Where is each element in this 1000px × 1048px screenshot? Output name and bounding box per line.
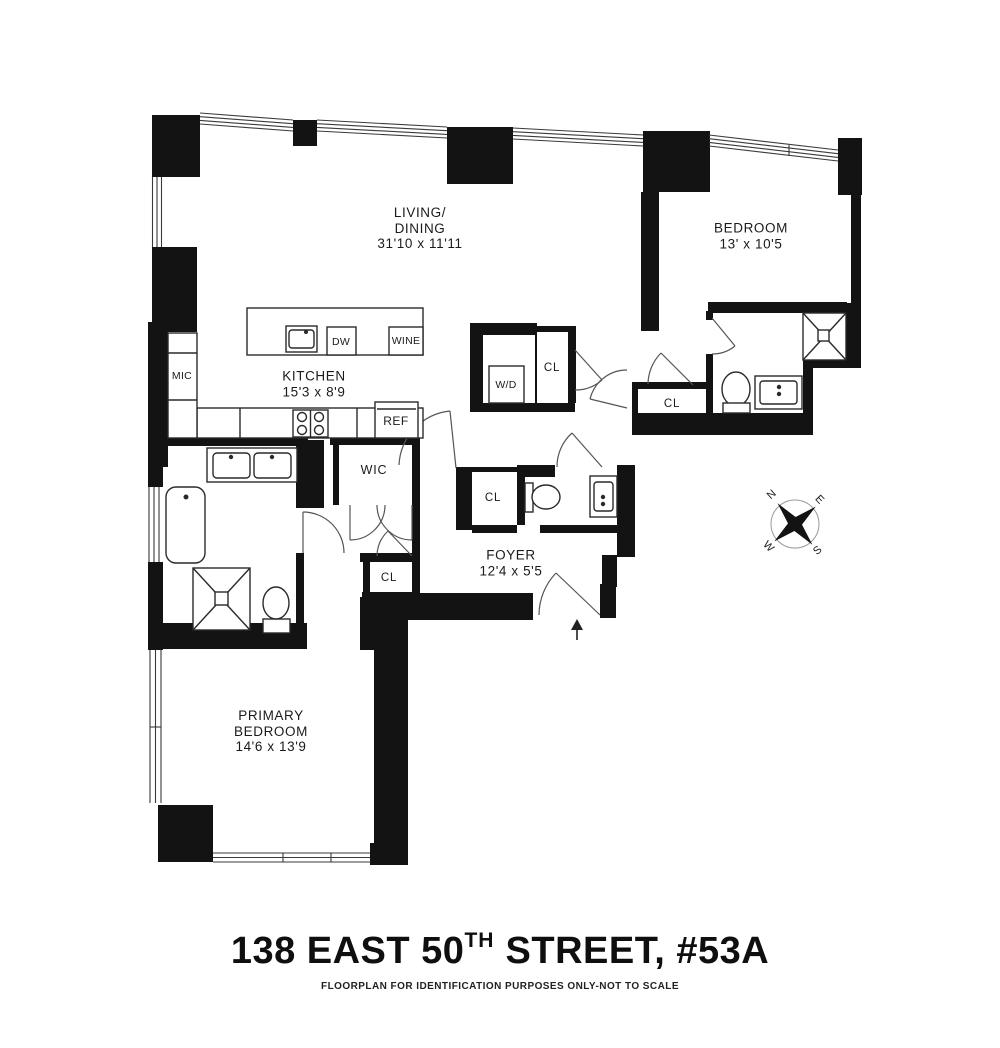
wall-entry-post xyxy=(600,584,616,618)
window-top-c xyxy=(513,128,643,146)
door-bedroom xyxy=(648,353,693,385)
hall-bath-sink xyxy=(590,476,617,517)
foyer-name: FOYER xyxy=(480,548,543,564)
wall-cl1-right xyxy=(568,326,576,403)
wall-wd-left xyxy=(470,323,483,412)
island-sink-basin xyxy=(289,330,314,348)
ref-label: REF xyxy=(383,414,409,428)
wall-top-left-corner xyxy=(152,115,200,177)
wall-bath2-bottom xyxy=(540,525,617,533)
window-left-upper xyxy=(153,177,162,247)
wall-cl3-left xyxy=(456,467,472,530)
wall-wd-top xyxy=(470,323,537,335)
wall-primary-right-bottom xyxy=(370,843,408,865)
shower-drain xyxy=(215,592,228,605)
hall-bath-toilet xyxy=(525,483,560,512)
wall-cl4-bottom xyxy=(362,592,418,600)
compass-s-label: S xyxy=(811,544,824,558)
living-dining-line2: DINING xyxy=(377,220,462,236)
wall-top-pier-2 xyxy=(447,127,513,184)
entry-arrow xyxy=(571,619,583,640)
wall-bath2-right xyxy=(617,465,635,557)
closet-primary-label: CL xyxy=(381,572,397,584)
wall-bottom-left-block xyxy=(158,805,213,862)
window-bottom-primary xyxy=(213,853,370,862)
wic-label: WIC xyxy=(361,463,388,477)
dw-label: DW xyxy=(332,336,350,348)
bedroom-toilet xyxy=(722,372,750,413)
wall-bath3-top xyxy=(708,302,847,313)
wall-left-block xyxy=(152,247,197,332)
wall-top-pier-1 xyxy=(293,120,317,146)
closet-foyer-label: CL xyxy=(485,492,501,504)
living-dining-dims: 31'10 x 11'11 xyxy=(377,236,462,252)
title-superscript: TH xyxy=(464,929,494,952)
wall-bath1-right-chunk xyxy=(296,440,324,508)
primary-bedroom-label: PRIMARY BEDROOM 14'6 x 13'9 xyxy=(234,708,308,755)
closet-hall-label: CL xyxy=(544,362,560,374)
wall-wic-left xyxy=(333,445,339,505)
living-dining-line1: LIVING/ xyxy=(377,205,462,221)
door-bedroom-bath xyxy=(712,318,735,354)
mic-label: MIC xyxy=(172,370,192,382)
burner xyxy=(315,426,324,435)
floorplan-svg: N E S W xyxy=(0,0,1000,1048)
wall-bath3-left-low xyxy=(706,354,713,415)
bedroom-dims: 13' x 10'5 xyxy=(714,236,788,252)
foyer-label: FOYER 12'4 x 5'5 xyxy=(480,548,543,579)
living-dining-label: LIVING/ DINING 31'10 x 11'11 xyxy=(377,205,462,252)
kitchen-name: KITCHEN xyxy=(282,369,345,385)
page-title: 138 EAST 50TH STREET, #53A xyxy=(0,930,1000,973)
wall-cl3-top xyxy=(472,467,517,472)
wall-bath3-right xyxy=(846,303,861,366)
window-left-primary xyxy=(150,650,161,803)
wall-cl2-left xyxy=(632,382,638,415)
wall-bath1-right-low xyxy=(296,553,304,625)
wall-wd-bottom xyxy=(470,403,575,412)
wall-cl2-top xyxy=(638,382,713,389)
wall-bath2-left xyxy=(517,477,525,525)
compass-rose: N E S W xyxy=(760,488,826,558)
door-hall-bath xyxy=(557,433,602,467)
window-left-bath xyxy=(149,487,159,562)
compass-w-label: W xyxy=(760,539,776,555)
wall-left-stub xyxy=(148,467,163,487)
wall-cl3-bottom xyxy=(472,525,517,533)
wall-foyer-bottom xyxy=(408,593,533,620)
closet-bedroom-label: CL xyxy=(664,398,680,410)
burner xyxy=(298,426,307,435)
wall-wic-right xyxy=(412,437,420,597)
wall-cl4-left xyxy=(363,562,370,597)
primary-line1: PRIMARY xyxy=(234,708,308,724)
door-hallway xyxy=(590,370,627,408)
microwave-cabinet xyxy=(168,333,197,438)
window-top-b xyxy=(317,120,447,138)
bedroom-name: BEDROOM xyxy=(714,221,788,237)
foyer-dims: 12'4 x 5'5 xyxy=(480,563,543,579)
wall-cl4-top xyxy=(360,553,418,562)
window-top-bedroom xyxy=(709,135,838,161)
faucet-dot xyxy=(230,456,233,459)
title-disclaimer: FLOORPLAN FOR IDENTIFICATION PURPOSES ON… xyxy=(0,981,1000,992)
wall-primary-right-top xyxy=(360,597,408,650)
floorplan-page: N E S W LIVING/ DINING 31'10 x 11'11 BED… xyxy=(0,0,1000,1048)
window-top-a xyxy=(200,113,293,131)
wall-left-band-low xyxy=(148,562,163,650)
burner xyxy=(315,413,324,422)
door-wic-double xyxy=(350,505,412,540)
wall-foyer-right xyxy=(602,555,617,587)
wall-living-bedroom xyxy=(641,192,659,331)
wine-label: WINE xyxy=(392,335,421,347)
wall-wd-cl-divider xyxy=(535,333,537,403)
wall-top-right-corner xyxy=(838,138,862,195)
kitchen-dims: 15'3 x 8'9 xyxy=(282,384,345,400)
primary-toilet xyxy=(263,587,290,633)
primary-line2: BEDROOM xyxy=(234,723,308,739)
door-primary-bath xyxy=(303,512,344,553)
title-prefix: 138 EAST 50 xyxy=(231,930,465,972)
wall-bath2-top xyxy=(517,465,555,477)
faucet-dot xyxy=(271,456,274,459)
wd-label: W/D xyxy=(495,379,516,391)
title-suffix: STREET, #53A xyxy=(494,930,769,972)
kitchen-label: KITCHEN 15'3 x 8'9 xyxy=(282,369,345,400)
wall-bath3-bottom xyxy=(632,413,813,435)
primary-shower xyxy=(193,568,250,630)
compass-e-label: E xyxy=(812,493,826,507)
bedroom-sink xyxy=(755,376,802,409)
island-faucet xyxy=(305,331,308,334)
compass-star xyxy=(774,503,815,544)
wall-cl1-top xyxy=(537,326,568,332)
burner xyxy=(298,413,307,422)
bedroom-label: BEDROOM 13' x 10'5 xyxy=(714,221,788,252)
wall-primary-right xyxy=(374,650,408,845)
door-entry xyxy=(539,573,600,615)
primary-dims: 14'6 x 13'9 xyxy=(234,739,308,755)
wall-living-bedroom-pier xyxy=(643,131,710,192)
bedroom-shower xyxy=(803,313,846,360)
tub-faucet xyxy=(184,495,188,499)
wall-bedroom-right xyxy=(851,193,861,305)
compass-n-label: N xyxy=(765,488,779,502)
shower-drain xyxy=(818,330,829,341)
